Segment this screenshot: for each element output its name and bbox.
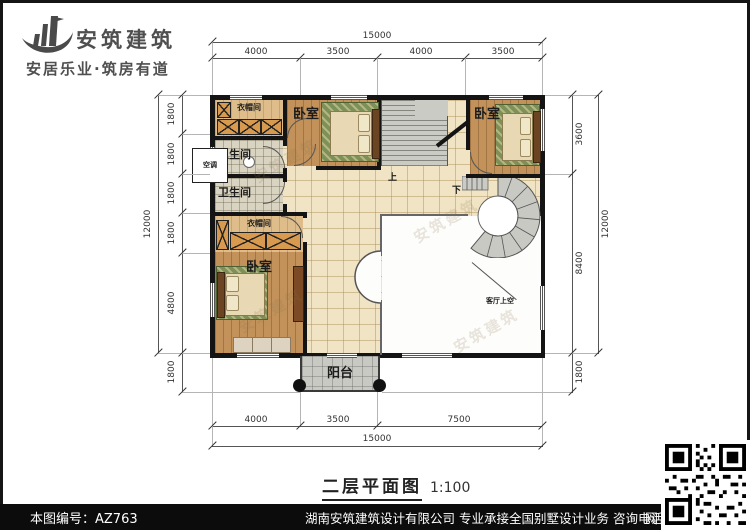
bed-pillow: [226, 276, 239, 292]
dim-line-left-overall: [158, 95, 159, 354]
bed-pillow: [358, 114, 370, 132]
dim-label: 1800: [167, 213, 179, 253]
footer-qr-label: 网: [645, 508, 658, 527]
window: [230, 95, 262, 100]
extension-line: [465, 58, 466, 95]
extension-line: [182, 392, 300, 393]
wardrobe-unit: [239, 119, 261, 135]
extension-line: [182, 174, 210, 175]
dim-line-bottom-overall: [212, 446, 543, 447]
wall-segment: [283, 100, 287, 146]
dim-label: 7500: [429, 415, 489, 425]
stair-down-label: 下: [452, 183, 461, 196]
extension-line: [212, 42, 213, 95]
dim-label: 3500: [308, 47, 368, 57]
dim-label: 15000: [347, 434, 407, 444]
dim-label: 1800: [167, 94, 179, 134]
dim-label: 3500: [473, 47, 533, 57]
dim-label: 3500: [308, 415, 368, 425]
footer-bar: 本图编号：AZ763 湖南安筑建筑设计有限公司 专业承接全国别墅设计业务 咨询电…: [0, 504, 750, 530]
cloakroom-label: 衣帽间: [215, 102, 283, 113]
bed-pillow: [520, 117, 531, 135]
company-logo-icon: [20, 14, 74, 54]
extension-line: [377, 392, 378, 426]
dim-line-right-overall: [598, 95, 599, 354]
extension-line: [300, 58, 301, 95]
bed-pillow: [358, 135, 370, 153]
bed-headboard: [372, 109, 380, 159]
frame-left: [0, 0, 3, 530]
extension-line: [182, 213, 210, 214]
bed: [495, 104, 540, 166]
spiral-staircase: [462, 176, 542, 258]
extension-line: [542, 358, 543, 446]
dim-label: 1800: [167, 352, 179, 392]
drawing-sheet: { "logo": {"company": "安筑建筑", "tagline":…: [0, 0, 750, 530]
drawing-title: 二层平面图: [322, 477, 422, 501]
window: [210, 283, 215, 317]
extension-line: [212, 358, 213, 446]
stair-up-label: 上: [388, 170, 397, 183]
living-void-label: 客厅上空: [460, 296, 540, 306]
qr-code: [661, 440, 750, 530]
dim-label: 1800: [167, 173, 179, 213]
balcony-label: 阳台: [300, 362, 380, 381]
wall-segment: [303, 212, 307, 218]
bedroom-label: 卧室: [215, 256, 303, 275]
ac-annotation-box: 空调: [192, 148, 228, 183]
dim-line-top-overall: [212, 42, 543, 43]
wall-segment: [283, 204, 287, 216]
extension-line: [300, 392, 301, 426]
dim-label: 1800: [167, 134, 179, 174]
wall-segment: [316, 166, 381, 170]
bed-headboard: [533, 111, 541, 163]
drawing-number: 本图编号：AZ763: [30, 508, 138, 527]
bedroom-label: 卧室: [474, 103, 500, 122]
extension-line: [545, 174, 572, 175]
void-curved-wall: [354, 250, 382, 304]
dim-line-left-segments: [182, 95, 183, 393]
dim-label: 4000: [226, 415, 286, 425]
drawing-title-block: 二层平面图1:100: [322, 472, 470, 497]
window: [402, 353, 452, 358]
balcony-door-opening: [327, 353, 357, 358]
bathroom-label: 卫生间: [218, 184, 251, 200]
dim-label: 4000: [391, 47, 451, 57]
frame-top: [0, 0, 750, 3]
extension-line: [158, 353, 210, 354]
bed-headboard: [217, 272, 225, 318]
extension-line: [182, 134, 210, 135]
extension-line: [182, 253, 210, 254]
window: [237, 353, 279, 358]
drawing-scale: 1:100: [430, 480, 470, 496]
wardrobe-unit: [261, 119, 282, 135]
dim-label: 4000: [226, 47, 286, 57]
wardrobe-unit: [266, 232, 301, 250]
bed-pillow: [226, 295, 239, 311]
dim-label: 4800: [167, 283, 179, 323]
window: [331, 95, 367, 100]
sofa: [233, 337, 291, 353]
dim-label: 8400: [575, 243, 587, 283]
wardrobe-unit: [217, 119, 239, 135]
company-name: 安筑建筑: [76, 24, 176, 54]
extension-line: [542, 42, 543, 95]
bed: [321, 102, 379, 162]
window: [489, 95, 523, 100]
wall-segment: [466, 174, 541, 178]
window: [540, 286, 545, 330]
wall-segment: [215, 136, 287, 140]
qr-code-image: [665, 444, 746, 525]
wardrobe-unit: [230, 232, 266, 250]
extension-line: [158, 95, 210, 96]
dim-label: 15000: [347, 31, 407, 41]
wall-segment: [215, 212, 307, 216]
bedroom-label: 卧室: [293, 103, 319, 122]
dim-line-right-segments: [572, 95, 573, 393]
dim-label: 12000: [601, 204, 613, 244]
dim-label: 3600: [575, 114, 587, 154]
dim-label: 1800: [575, 352, 587, 392]
stair-landing: [415, 100, 448, 116]
extension-line: [382, 392, 572, 393]
cloakroom-label: 衣帽间: [215, 218, 303, 229]
void-wall-left-lower: [380, 300, 382, 355]
ac-annotation-label: 空调: [203, 161, 217, 169]
bed-pillow: [520, 139, 531, 157]
company-tagline: 安居乐业·筑房有道: [26, 58, 170, 79]
extension-line: [377, 58, 378, 95]
dim-label: 12000: [143, 204, 155, 244]
